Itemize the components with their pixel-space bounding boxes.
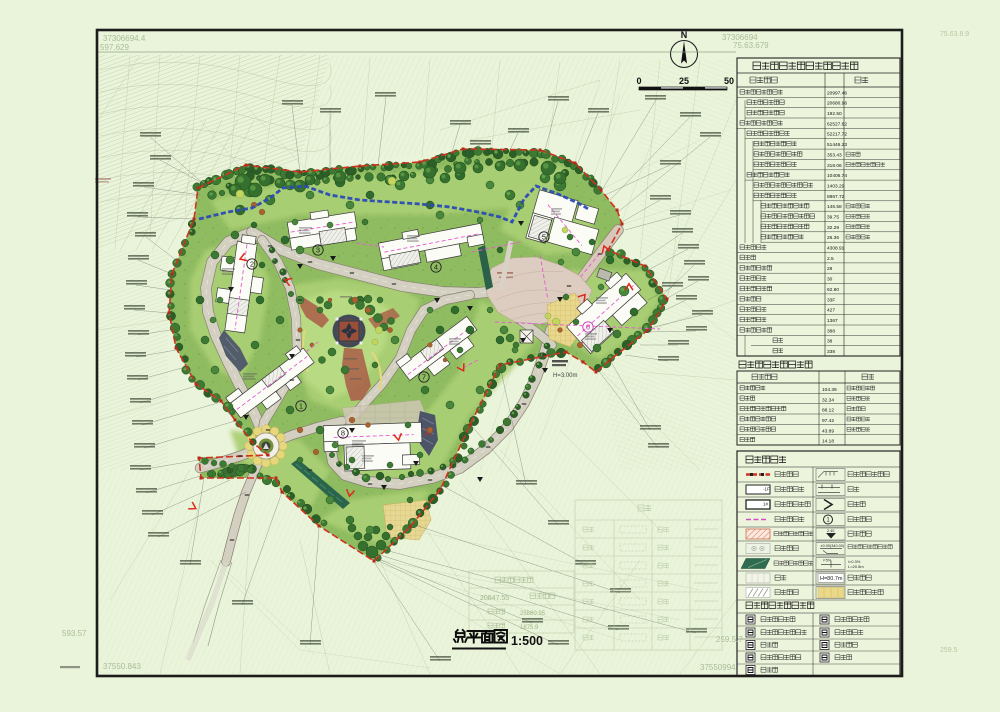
svg-text:2.5: 2.5 bbox=[827, 256, 834, 262]
svg-text:37306694.4: 37306694.4 bbox=[103, 34, 146, 43]
svg-text:259.5: 259.5 bbox=[940, 647, 958, 654]
svg-text:52217.72: 52217.72 bbox=[827, 132, 847, 138]
svg-text:33F: 33F bbox=[827, 297, 835, 303]
svg-text:318.06: 318.06 bbox=[827, 163, 842, 169]
svg-text:i=5%: i=5% bbox=[823, 559, 832, 563]
svg-text:2: 2 bbox=[250, 260, 254, 269]
svg-text:8: 8 bbox=[341, 429, 345, 438]
svg-text:1:500: 1:500 bbox=[511, 634, 543, 648]
svg-text:37550.843: 37550.843 bbox=[103, 662, 141, 671]
svg-text:14.18: 14.18 bbox=[822, 439, 834, 445]
svg-text:N: N bbox=[681, 30, 688, 40]
svg-text:597.629: 597.629 bbox=[100, 43, 129, 52]
svg-text:39.75: 39.75 bbox=[827, 215, 839, 221]
svg-text:259.5.7: 259.5.7 bbox=[716, 635, 743, 644]
svg-text:8867.72: 8867.72 bbox=[827, 194, 845, 200]
svg-text:25: 25 bbox=[679, 76, 689, 86]
svg-text:75.63.679: 75.63.679 bbox=[733, 41, 769, 50]
svg-text:1: 1 bbox=[299, 402, 303, 411]
svg-text:H=3.00m: H=3.00m bbox=[553, 373, 578, 379]
svg-text:25860.95: 25860.95 bbox=[520, 611, 546, 617]
svg-text:38: 38 bbox=[827, 339, 833, 345]
svg-text:0: 0 bbox=[636, 76, 641, 86]
svg-text:-1F: -1F bbox=[763, 487, 770, 492]
svg-text:L=20.5m: L=20.5m bbox=[848, 564, 864, 569]
svg-text:1367: 1367 bbox=[827, 318, 838, 324]
svg-text:5: 5 bbox=[542, 233, 546, 242]
svg-text:50: 50 bbox=[724, 76, 734, 86]
svg-text:32.34: 32.34 bbox=[822, 397, 834, 403]
svg-text:26.36: 26.36 bbox=[827, 235, 839, 241]
svg-text:146.58: 146.58 bbox=[827, 204, 842, 210]
svg-text:37550994: 37550994 bbox=[700, 663, 736, 672]
svg-text:4308.91: 4308.91 bbox=[827, 246, 845, 252]
svg-text:1875.9: 1875.9 bbox=[520, 625, 539, 631]
svg-text:20997.46: 20997.46 bbox=[827, 90, 847, 96]
svg-text:H=80.7m: H=80.7m bbox=[820, 576, 843, 582]
svg-text:62527.62: 62527.62 bbox=[827, 121, 847, 127]
svg-text:7: 7 bbox=[422, 373, 426, 382]
svg-text:192.50: 192.50 bbox=[827, 111, 842, 117]
svg-text:20680.96: 20680.96 bbox=[827, 101, 847, 107]
svg-text:43.89: 43.89 bbox=[822, 428, 834, 434]
svg-text:4: 4 bbox=[434, 263, 438, 272]
svg-text:28: 28 bbox=[827, 266, 833, 272]
svg-text:32.29: 32.29 bbox=[827, 225, 839, 231]
svg-text:97.42: 97.42 bbox=[822, 418, 834, 424]
svg-text:6: 6 bbox=[586, 323, 590, 332]
svg-text:75.63.8.9: 75.63.8.9 bbox=[940, 31, 969, 38]
svg-text:51446.23: 51446.23 bbox=[827, 142, 847, 148]
svg-text:593.57: 593.57 bbox=[62, 629, 87, 638]
svg-text:±0.00(340.00): ±0.00(340.00) bbox=[821, 544, 845, 548]
svg-text:88.12: 88.12 bbox=[822, 408, 834, 414]
svg-text:353.43: 353.43 bbox=[827, 152, 842, 158]
svg-text:2.40: 2.40 bbox=[827, 529, 834, 533]
svg-text:388: 388 bbox=[827, 328, 835, 334]
svg-text:427: 427 bbox=[827, 308, 835, 314]
svg-text:30: 30 bbox=[827, 277, 833, 283]
svg-text:1#: 1# bbox=[763, 502, 769, 507]
svg-text:62.80: 62.80 bbox=[827, 287, 839, 293]
svg-text:3: 3 bbox=[316, 246, 320, 255]
svg-text:10406.74: 10406.74 bbox=[827, 173, 847, 179]
svg-text:20847.55: 20847.55 bbox=[480, 595, 509, 602]
svg-text:104.39: 104.39 bbox=[822, 387, 837, 393]
svg-text:338: 338 bbox=[827, 349, 835, 355]
svg-text:1403.29: 1403.29 bbox=[827, 184, 845, 190]
